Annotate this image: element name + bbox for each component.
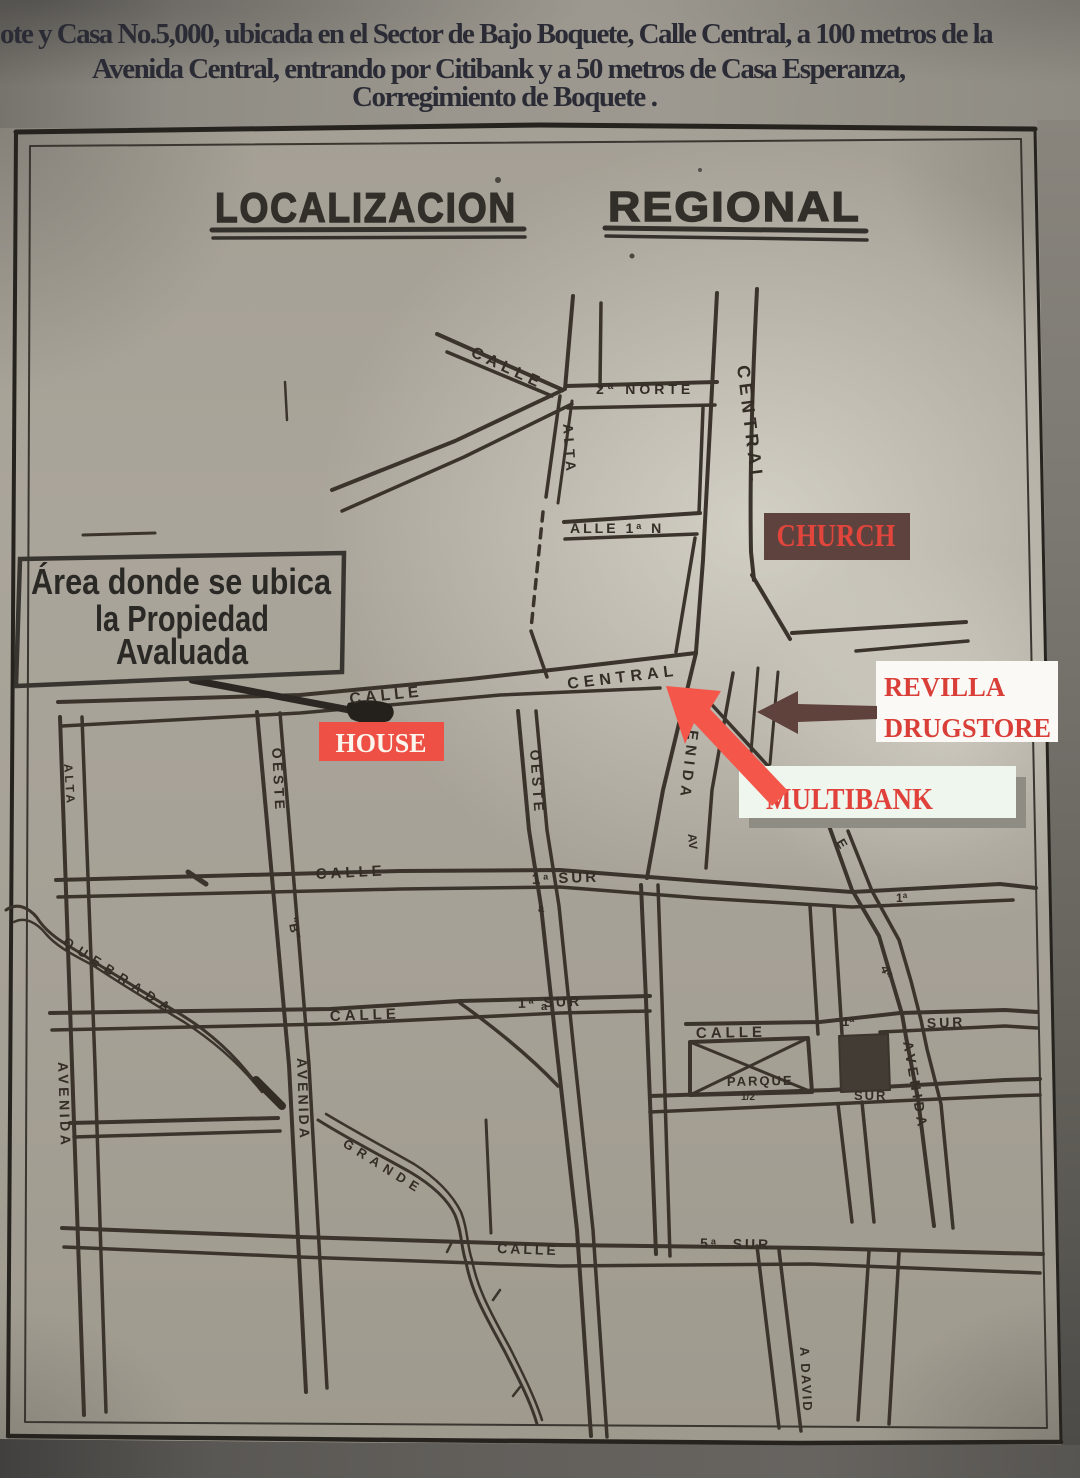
svg-text:AVENIDA: AVENIDA (55, 1062, 74, 1149)
svg-text:REGIONAL: REGIONAL (608, 183, 861, 230)
svg-text:1a: 1a (896, 891, 908, 905)
svg-text:AV: AV (685, 833, 700, 850)
svg-text:OESTE: OESTE (269, 747, 288, 813)
svg-text:"B": "B" (285, 916, 304, 940)
svg-text:ALLE 1a N: ALLE 1a N (570, 520, 664, 536)
svg-text:OESTE: OESTE (527, 749, 547, 815)
svg-text:CALLE: CALLE (497, 1240, 559, 1258)
svg-text:CALLE: CALLE (468, 344, 546, 393)
svg-text:CALLE: CALLE (330, 1006, 401, 1025)
svg-text:MULTIBANK: MULTIBANK (766, 781, 933, 816)
svg-text:HOUSE: HOUSE (336, 728, 427, 758)
svg-text:1a SUR: 1a SUR (518, 993, 583, 1011)
svg-text:5a SUR: 5a SUR (700, 1235, 771, 1252)
svg-text:PARQUE: PARQUE (727, 1073, 794, 1089)
svg-text:1a SUR: 1a SUR (532, 869, 600, 888)
svg-text:CHURCH: CHURCH (777, 517, 896, 553)
svg-text:1/2: 1/2 (741, 1092, 755, 1103)
svg-text:4a: 4a (877, 963, 896, 981)
svg-text:Área donde se ubica: Área donde se ubica (31, 561, 332, 602)
svg-text:QUEBRADA: QUEBRADA (60, 934, 178, 1018)
svg-text:REVILLA: REVILLA (884, 672, 1005, 702)
svg-text:A DAVID: A DAVID (797, 1346, 815, 1413)
svg-text:CALLE: CALLE (696, 1024, 766, 1042)
svg-text:a: a (541, 1001, 548, 1013)
svg-text:Avaluada: Avaluada (116, 631, 249, 672)
svg-text:2a NORTE: 2a NORTE (596, 381, 694, 397)
svg-text:SUR: SUR (854, 1088, 887, 1103)
svg-text:CENTRAL: CENTRAL (733, 364, 768, 487)
svg-text:ALTA: ALTA (61, 763, 78, 806)
svg-text:CALLE: CALLE (315, 862, 386, 883)
svg-text:GRANDE: GRANDE (340, 1136, 426, 1198)
svg-text:LOCALIZACION: LOCALIZACION (215, 184, 517, 231)
svg-text:1a: 1a (842, 1014, 855, 1029)
svg-text:a: a (538, 903, 545, 915)
svg-text:AVENIDA: AVENIDA (294, 1058, 313, 1141)
svg-text:DRUGSTORE: DRUGSTORE (884, 713, 1051, 743)
svg-text:SUR: SUR (927, 1014, 966, 1031)
